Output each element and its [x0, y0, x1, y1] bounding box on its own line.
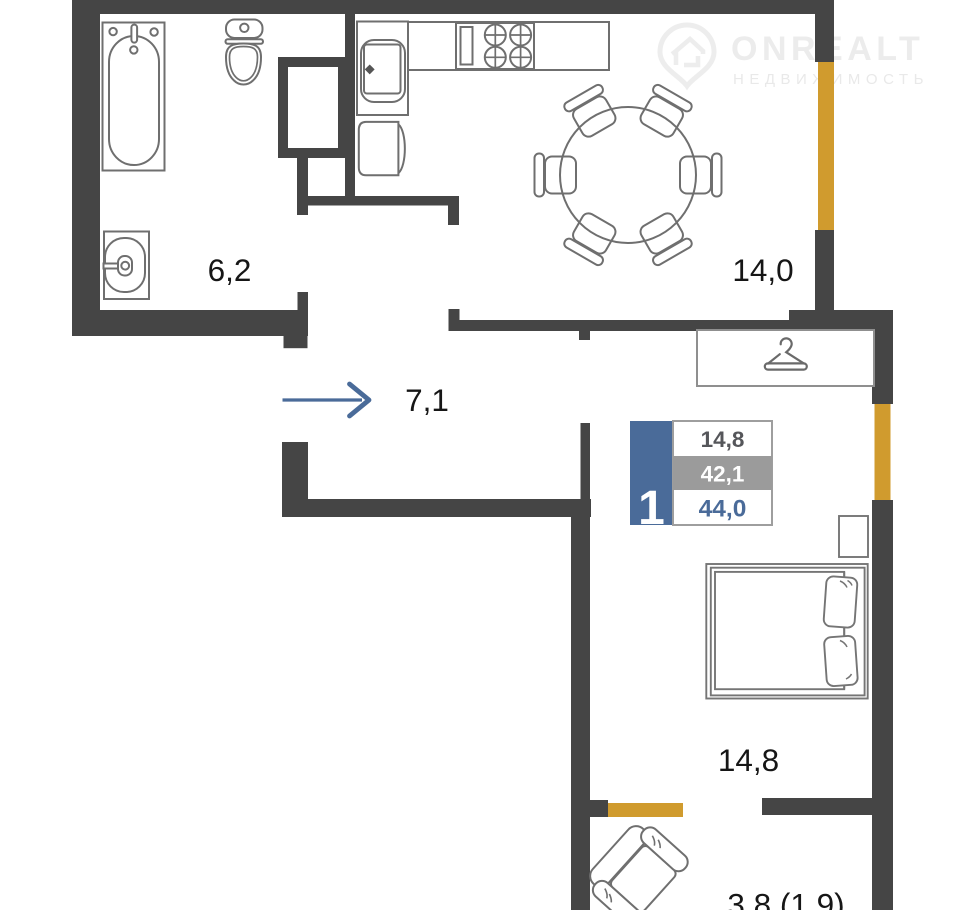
- svg-text:14,8: 14,8: [718, 742, 779, 778]
- svg-text:7,1: 7,1: [405, 382, 449, 418]
- svg-text:44,0: 44,0: [699, 496, 747, 523]
- svg-text:14,0: 14,0: [732, 252, 793, 288]
- svg-text:14,8: 14,8: [701, 427, 745, 452]
- svg-text:6,2: 6,2: [208, 252, 252, 288]
- svg-text:42,1: 42,1: [701, 462, 745, 487]
- svg-text:1: 1: [638, 482, 665, 535]
- svg-text:3,8 (1,9): 3,8 (1,9): [727, 887, 844, 910]
